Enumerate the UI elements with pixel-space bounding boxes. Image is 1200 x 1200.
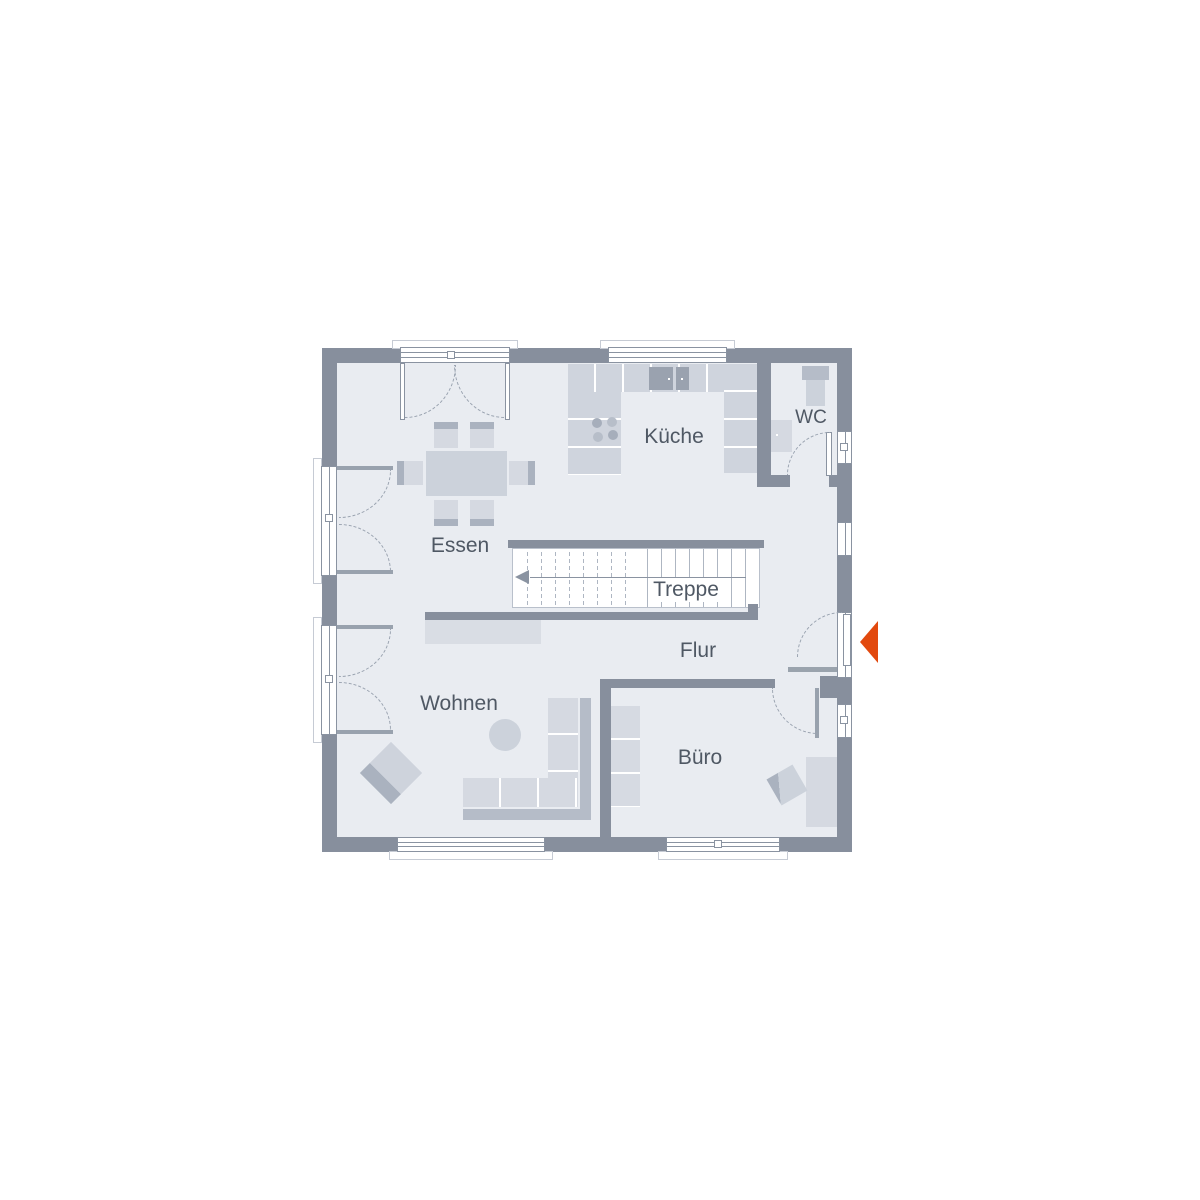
wc-sink xyxy=(771,420,792,452)
wall-stairs-top xyxy=(508,540,764,548)
dining-chair xyxy=(397,461,423,485)
wall-right xyxy=(837,348,852,852)
wall-office-left xyxy=(600,679,611,837)
floor-plan: Küche WC Essen Treppe Flur Wohnen Büro xyxy=(0,0,1200,1200)
entrance-door-leaf xyxy=(843,614,851,666)
window-sill xyxy=(658,851,788,860)
room-label-wc: WC xyxy=(795,407,827,429)
wall-wc-divider xyxy=(757,363,771,487)
room-label-kueche: Küche xyxy=(644,425,704,449)
room-label-treppe: Treppe xyxy=(649,578,723,602)
window-handle xyxy=(714,840,722,848)
dining-chair xyxy=(470,500,494,526)
wall-wc-bottom-left xyxy=(757,475,790,487)
dining-table xyxy=(426,451,507,496)
cooktop-burner xyxy=(593,432,603,442)
door-leaf xyxy=(337,730,393,734)
cooktop-burner xyxy=(608,430,618,440)
stair-treads-dashed xyxy=(514,549,634,607)
french-door-top xyxy=(400,347,510,363)
window-sill xyxy=(389,851,553,860)
window-handle xyxy=(325,675,333,683)
kitchen-counter-right xyxy=(724,364,758,473)
wall-office-door-post xyxy=(820,676,837,698)
sofa-seats-horizontal xyxy=(463,778,578,807)
wall-wc-bottom-right xyxy=(829,475,837,487)
office-desk xyxy=(806,757,838,827)
cooktop-burner xyxy=(607,417,617,427)
wall-office-top xyxy=(600,679,775,688)
sink-tap-dot xyxy=(668,378,670,380)
room-label-flur: Flur xyxy=(680,639,716,663)
cooktop-burner xyxy=(592,418,602,428)
sofa-backrest-horizontal xyxy=(463,809,591,820)
room-label-essen: Essen xyxy=(431,534,489,558)
stair-balustrade-end xyxy=(748,604,758,620)
stair-direction-arrow-icon xyxy=(515,570,529,584)
sideboard xyxy=(425,620,541,644)
hall-window xyxy=(837,522,852,556)
door-frame-post xyxy=(505,363,510,420)
appliance-dot xyxy=(681,378,683,380)
stair-balustrade xyxy=(425,612,758,620)
dining-chair xyxy=(509,461,535,485)
kitchen-window xyxy=(608,347,727,363)
room-label-wohnen: Wohnen xyxy=(420,692,498,716)
office-window-bottom xyxy=(666,837,780,852)
wall-left xyxy=(322,348,337,852)
dining-chair xyxy=(434,500,458,526)
toilet-bowl xyxy=(806,380,825,406)
window-handle xyxy=(840,716,848,724)
wc-sink-tap-dot xyxy=(776,434,778,436)
living-window-bottom xyxy=(397,837,545,852)
dining-chair xyxy=(434,422,458,448)
wall-entry-stub xyxy=(788,667,837,672)
coffee-table xyxy=(489,719,521,751)
toilet-cistern xyxy=(802,366,829,380)
entrance-arrow-icon xyxy=(860,621,878,663)
window-handle xyxy=(840,443,848,451)
window-handle xyxy=(447,351,455,359)
sofa-backrest-vertical xyxy=(580,698,591,820)
dining-chair xyxy=(470,422,494,448)
window-handle xyxy=(325,514,333,522)
room-label-buero: Büro xyxy=(678,746,722,770)
office-shelf xyxy=(610,706,640,807)
